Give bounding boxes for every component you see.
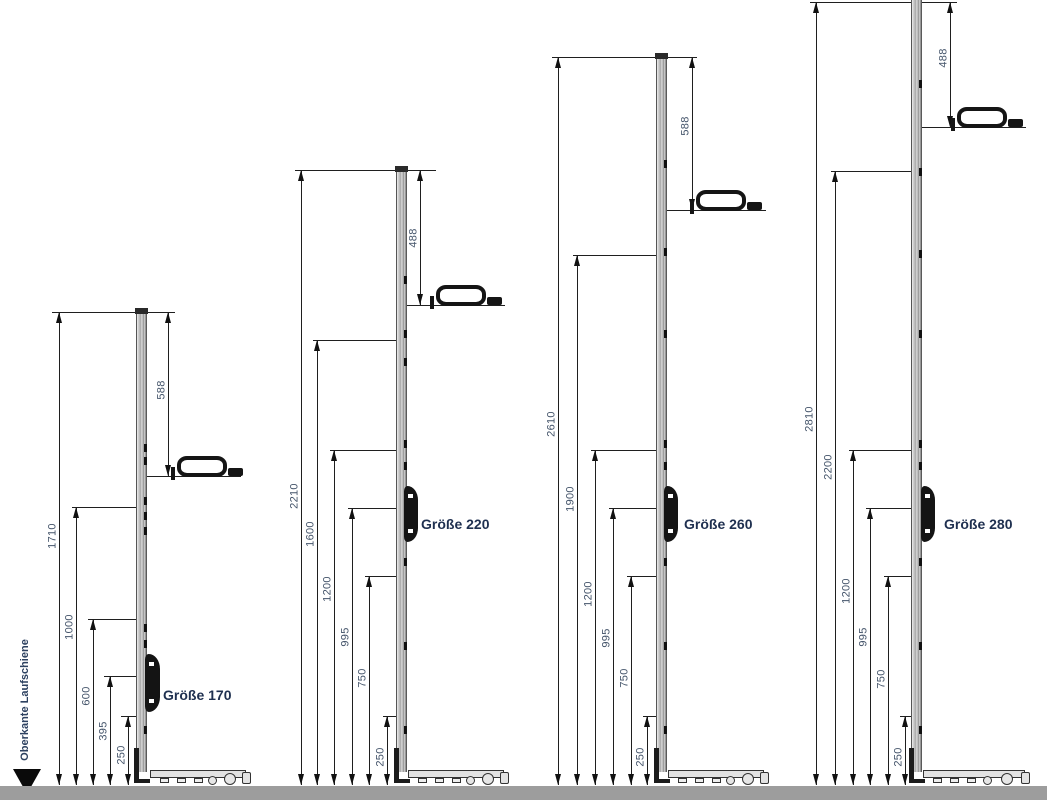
- roller-wheel-icon: [742, 773, 754, 785]
- rail-cap: [395, 166, 408, 172]
- dimension-label: 1600: [306, 521, 317, 547]
- locking-pin-tick: [919, 558, 922, 566]
- arrow-down-icon: [125, 774, 131, 785]
- dimension-label: 1200: [323, 576, 334, 602]
- locking-pin-tick: [919, 168, 922, 176]
- dimension-label: 250: [376, 747, 387, 766]
- dimension-line: [59, 312, 60, 785]
- arrow-up-icon: [832, 171, 838, 182]
- rail-foot: [134, 779, 150, 783]
- locking-pin-tick: [919, 726, 922, 734]
- arrow-down-icon: [867, 774, 873, 785]
- arrow-down-icon: [107, 774, 113, 785]
- locking-pin-tick: [404, 726, 407, 734]
- carriage-stud: [695, 778, 704, 783]
- handle-foot: [171, 467, 175, 480]
- extension-line: [52, 312, 175, 313]
- handle-foot: [430, 296, 434, 309]
- arrow-up-icon: [349, 508, 355, 519]
- handle-icon: [177, 456, 227, 477]
- arrow-up-icon: [56, 312, 62, 323]
- locking-pin-tick: [404, 462, 407, 470]
- carriage-end: [760, 772, 769, 784]
- arrow-down-icon: [298, 774, 304, 785]
- locking-pin-tick: [664, 248, 667, 256]
- handle-dimension-line: [420, 170, 421, 305]
- rail-foot: [394, 748, 399, 783]
- locking-pin-tick: [664, 558, 667, 566]
- extension-line: [831, 171, 914, 172]
- arrow-up-icon: [885, 576, 891, 587]
- carriage-stud: [933, 778, 942, 783]
- roller-wheel-icon: [983, 776, 992, 785]
- handle-knob: [487, 297, 502, 305]
- dimension-line: [369, 576, 370, 785]
- gearbox-icon: [664, 486, 678, 542]
- handle-knob: [747, 202, 762, 210]
- handle-dimension-line: [950, 2, 951, 127]
- dimension-label: 2810: [805, 406, 816, 432]
- dimension-label: 250: [894, 747, 905, 766]
- roller-wheel-icon: [466, 776, 475, 785]
- rail-foot: [134, 748, 139, 783]
- dimension-label: 250: [636, 747, 647, 766]
- locking-pin-tick: [664, 462, 667, 470]
- arrow-up-icon: [90, 619, 96, 630]
- locking-pin-tick: [144, 640, 147, 648]
- carriage-stud: [160, 778, 169, 783]
- arrow-up-icon: [813, 2, 819, 13]
- extension-line: [849, 450, 914, 451]
- roller-wheel-icon: [208, 776, 217, 785]
- arrow-up-icon: [867, 508, 873, 519]
- carriage: [923, 768, 1035, 786]
- arrow-down-icon: [56, 774, 62, 785]
- roller-wheel-icon: [224, 773, 236, 785]
- handle-icon: [436, 285, 486, 306]
- carriage-stud: [967, 778, 976, 783]
- dimension-line: [577, 255, 578, 785]
- arrow-down-icon: [555, 774, 561, 785]
- arrow-down-icon: [366, 774, 372, 785]
- arrow-up-icon: [165, 312, 171, 323]
- extension-line: [72, 507, 139, 508]
- extension-line: [348, 508, 399, 509]
- dimension-label: 1000: [65, 614, 76, 640]
- roller-wheel-icon: [482, 773, 494, 785]
- arrow-up-icon: [417, 170, 423, 181]
- dimension-line: [76, 507, 77, 785]
- roller-wheel-icon: [1001, 773, 1013, 785]
- dimension-label: 995: [602, 628, 613, 647]
- size-label: Größe 280: [944, 516, 1012, 532]
- gearbox-icon: [921, 486, 935, 542]
- dimension-label: 2200: [824, 454, 835, 480]
- handle-icon: [696, 190, 746, 211]
- arrow-down-icon: [832, 774, 838, 785]
- arrow-up-icon: [331, 450, 337, 461]
- arrow-up-icon: [125, 716, 131, 727]
- locking-pin-tick: [404, 330, 407, 338]
- dimension-label: 488: [409, 228, 420, 247]
- carriage-stud: [678, 778, 687, 783]
- gearbox-icon: [404, 486, 418, 542]
- dimension-line: [301, 170, 302, 785]
- handle-knob: [228, 468, 243, 476]
- dimension-label: 750: [620, 668, 631, 687]
- handle-knob: [1008, 119, 1023, 127]
- arrow-up-icon: [850, 450, 856, 461]
- rail-foot: [909, 748, 914, 783]
- handle-dimension-line: [168, 312, 169, 476]
- extension-line: [573, 255, 659, 256]
- dimension-line: [558, 57, 559, 785]
- handle-icon: [957, 107, 1007, 128]
- dimension-label: 995: [859, 627, 870, 646]
- dimension-line: [93, 619, 94, 785]
- locking-pin-tick: [664, 160, 667, 168]
- arrow-down-icon: [902, 774, 908, 785]
- dimension-label: 1200: [842, 578, 853, 604]
- dimension-line: [631, 576, 632, 785]
- rail-foot: [654, 748, 659, 783]
- handle-foot: [690, 201, 694, 214]
- arrow-up-icon: [689, 57, 695, 68]
- locking-pin-tick: [404, 440, 407, 448]
- dimension-line: [870, 508, 871, 785]
- locking-pin-tick: [144, 527, 147, 535]
- carriage: [668, 768, 780, 786]
- dimension-line: [613, 508, 614, 785]
- extension-line: [313, 340, 399, 341]
- arrow-down-icon: [574, 774, 580, 785]
- locking-pin-tick: [919, 462, 922, 470]
- rail-profile: [911, 0, 922, 772]
- dimension-label: 750: [358, 668, 369, 687]
- dimension-label: 2610: [547, 411, 558, 437]
- arrow-down-icon: [885, 774, 891, 785]
- dimension-line: [334, 450, 335, 785]
- locking-pin-tick: [664, 726, 667, 734]
- arrow-up-icon: [947, 2, 953, 13]
- locking-pin-tick: [404, 558, 407, 566]
- dimension-label: 588: [681, 116, 692, 135]
- baseline-bar: [0, 786, 1047, 800]
- locking-pin-tick: [144, 624, 147, 632]
- locking-pin-tick: [664, 440, 667, 448]
- dimension-label: 2210: [290, 483, 301, 509]
- extension-line: [552, 57, 697, 58]
- arrow-up-icon: [107, 676, 113, 687]
- carriage-stud: [435, 778, 444, 783]
- arrow-up-icon: [644, 716, 650, 727]
- arrow-down-icon: [813, 774, 819, 785]
- locking-pin-tick: [404, 276, 407, 284]
- carriage-end: [242, 772, 251, 784]
- arrow-down-icon: [417, 294, 423, 305]
- dimension-label: 588: [157, 380, 168, 399]
- datum-label: Oberkante Laufschiene: [19, 639, 31, 761]
- roller-wheel-icon: [726, 776, 735, 785]
- arrow-up-icon: [366, 576, 372, 587]
- carriage-end: [1021, 772, 1030, 784]
- arrow-down-icon: [314, 774, 320, 785]
- carriage: [408, 768, 520, 786]
- arrow-down-icon: [384, 774, 390, 785]
- carriage-stud: [712, 778, 721, 783]
- dimension-line: [317, 340, 318, 785]
- carriage: [150, 768, 262, 786]
- locking-pin-tick: [404, 642, 407, 650]
- dimension-label: 395: [99, 721, 110, 740]
- dimension-line: [835, 171, 836, 785]
- dimension-label: 750: [877, 669, 888, 688]
- arrow-down-icon: [610, 774, 616, 785]
- dimension-label: 250: [117, 745, 128, 764]
- carriage-stud: [418, 778, 427, 783]
- arrow-down-icon: [628, 774, 634, 785]
- arrow-up-icon: [628, 576, 634, 587]
- locking-pin-tick: [144, 512, 147, 520]
- carriage-stud: [452, 778, 461, 783]
- dimension-line: [110, 676, 111, 785]
- gearbox-icon: [145, 654, 160, 712]
- extension-line: [295, 170, 436, 171]
- arrow-down-icon: [644, 774, 650, 785]
- dimension-label: 1710: [48, 523, 59, 549]
- arrow-up-icon: [384, 716, 390, 727]
- handle-foot: [951, 118, 955, 131]
- arrow-up-icon: [314, 340, 320, 351]
- handle-dimension-line: [692, 57, 693, 210]
- arrow-down-icon: [331, 774, 337, 785]
- dimension-label: 1200: [584, 581, 595, 607]
- locking-pin-tick: [664, 330, 667, 338]
- locking-pin-tick: [919, 80, 922, 88]
- dimension-line: [352, 508, 353, 785]
- carriage-stud: [950, 778, 959, 783]
- arrow-up-icon: [592, 450, 598, 461]
- size-label: Größe 170: [163, 687, 231, 703]
- size-label: Größe 260: [684, 516, 752, 532]
- locking-pin-tick: [919, 330, 922, 338]
- extension-line: [591, 450, 659, 451]
- arrow-down-icon: [592, 774, 598, 785]
- locking-pin-tick: [144, 726, 147, 734]
- dimension-line: [816, 2, 817, 785]
- dimension-label: 488: [939, 48, 950, 67]
- carriage-end: [500, 772, 509, 784]
- arrow-down-icon: [850, 774, 856, 785]
- size-label: Größe 220: [421, 516, 489, 532]
- arrow-down-icon: [349, 774, 355, 785]
- arrow-up-icon: [610, 508, 616, 519]
- arrow-up-icon: [73, 507, 79, 518]
- rail-cap: [655, 53, 668, 59]
- locking-pin-tick: [144, 497, 147, 505]
- arrow-up-icon: [555, 57, 561, 68]
- arrow-down-icon: [90, 774, 96, 785]
- technical-drawing: Oberkante Laufschiene 1710 1000 600 395 …: [0, 0, 1047, 800]
- dimension-label: 995: [341, 627, 352, 646]
- locking-pin-tick: [919, 642, 922, 650]
- carriage-stud: [194, 778, 203, 783]
- locking-pin-tick: [144, 444, 147, 452]
- dimension-label: 1900: [566, 486, 577, 512]
- dimension-line: [888, 576, 889, 785]
- arrow-up-icon: [902, 716, 908, 727]
- rail-profile: [396, 168, 407, 772]
- locking-pin-tick: [664, 642, 667, 650]
- arrow-down-icon: [73, 774, 79, 785]
- extension-line: [330, 450, 399, 451]
- rail-cap: [135, 308, 148, 314]
- extension-line: [866, 508, 914, 509]
- carriage-stud: [177, 778, 186, 783]
- locking-pin-tick: [919, 440, 922, 448]
- locking-pin-tick: [144, 457, 147, 465]
- locking-pin-tick: [919, 250, 922, 258]
- dimension-label: 600: [82, 686, 93, 705]
- locking-pin-tick: [404, 358, 407, 366]
- extension-line: [810, 2, 957, 3]
- arrow-up-icon: [574, 255, 580, 266]
- arrow-up-icon: [298, 170, 304, 181]
- dimension-line: [853, 450, 854, 785]
- extension-line: [609, 508, 659, 509]
- dimension-line: [595, 450, 596, 785]
